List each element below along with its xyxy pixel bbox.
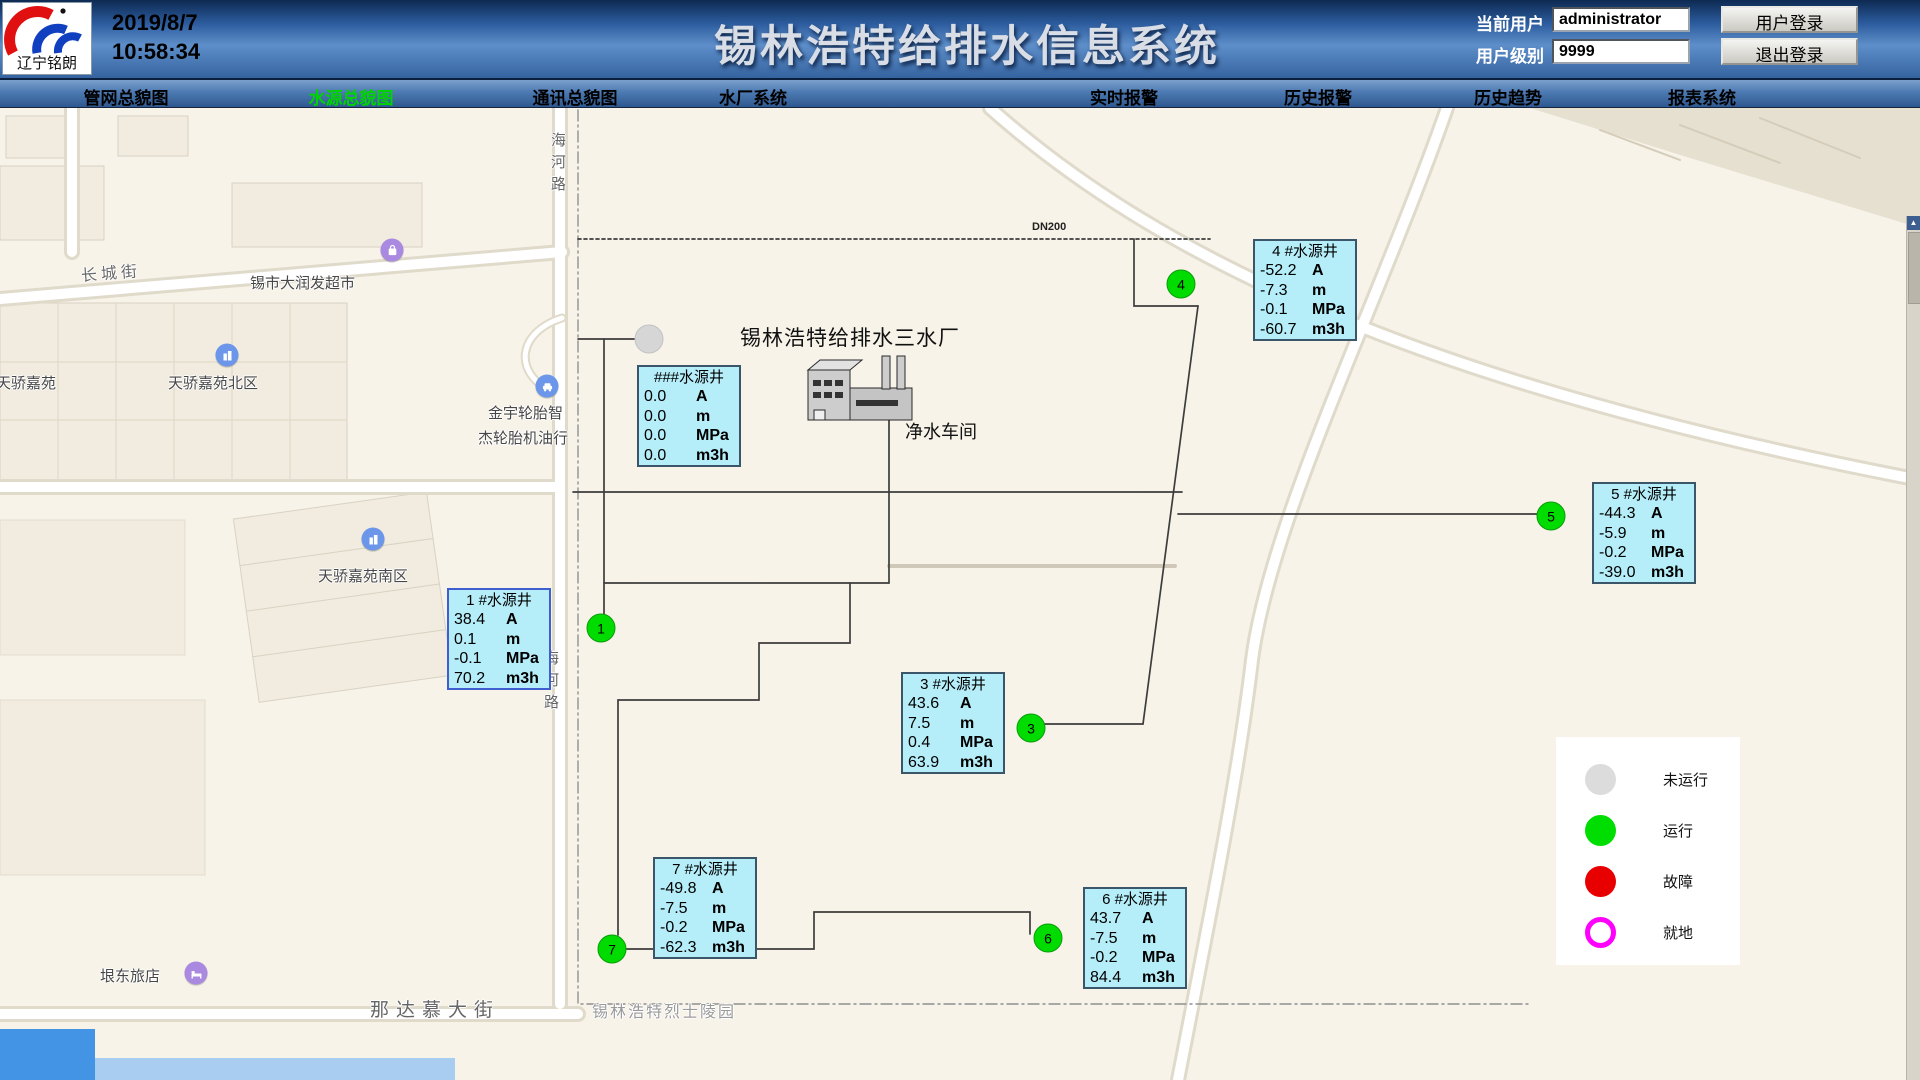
current-user-field[interactable] [1552,7,1690,32]
login-button[interactable]: 用户登录 [1721,6,1858,33]
well-title: 3 #水源井 [903,674,1003,694]
company-logo: 辽宁铭朗 [2,2,92,75]
well-box-5[interactable]: 5 #水源井-44.3A-5.9m-0.2MPa-39.0m3h [1592,482,1696,584]
map-label: 杰轮胎机油行 [478,427,568,448]
datetime-display: 2019/8/710:58:34 [112,8,200,66]
well-measurement-row: -0.1MPa [449,649,549,669]
scrollbar-thumb[interactable] [1908,232,1920,304]
legend-status-icon [1585,866,1616,897]
water-plant-building-icon [808,356,912,420]
map-label: 海河路 [547,132,568,198]
well-measurement-row: 0.0m [639,407,739,427]
map-label: 金宇轮胎智 [488,402,563,423]
legend-status-icon [1585,917,1616,948]
supermarket-icon [381,239,404,262]
legend-label: 运行 [1663,820,1693,841]
well-measurement-row: -52.2A [1255,261,1355,281]
well-title: ###水源井 [639,367,739,387]
user-level-label: 用户级别 [1476,42,1544,67]
well-box-4[interactable]: 4 #水源井-52.2A-7.3m-0.1MPa-60.7m3h [1253,239,1357,341]
map-label: 天骄嘉苑 [0,372,56,393]
user-level-field[interactable] [1552,39,1690,64]
logout-button[interactable]: 退出登录 [1721,38,1858,65]
well-measurement-row: 84.4m3h [1085,968,1185,988]
well-marker-6[interactable]: 6 [1034,924,1063,953]
well-measurement-row: 0.4MPa [903,733,1003,753]
plant-title: 锡林浩特给排水三水厂 [740,322,960,352]
title-bar: 辽宁铭朗 2019/8/710:58:34 锡林浩特给排水信息系统 当前用户 用… [0,0,1920,79]
well-measurement-row: -7.3m [1255,281,1355,301]
map-label: 天骄嘉苑北区 [168,372,258,393]
auto-shop-icon [536,375,559,398]
well-title: 6 #水源井 [1085,889,1185,909]
legend-status-icon [1585,764,1616,795]
nav-comms-overview[interactable]: 通讯总貌图 [533,84,618,109]
map-canvas[interactable]: 锡林浩特给排水三水厂 净水车间 DN200 未运行运行故障就地 ▲ 海河路长城街… [0,108,1920,1080]
pipe-diameter-label: DN200 [1032,221,1066,233]
legend-item: 运行 [1556,814,1740,846]
well-marker-4[interactable]: 4 [1167,270,1196,299]
scroll-up-arrow-icon[interactable]: ▲ [1907,216,1920,230]
map-label: 锡市大润发超市 [250,272,355,293]
well-measurement-row: -0.2MPa [655,918,755,938]
main-nav-bar: 管网总貌图水源总貌图通讯总貌图水厂系统实时报警历史报警历史趋势报表系统 [0,78,1920,108]
well-measurement-row: -0.2MPa [1085,948,1185,968]
current-user-label: 当前用户 [1476,10,1544,35]
well-measurement-row: 0.0m3h [639,446,739,466]
legend-item: 故障 [1556,865,1740,897]
well-marker-unit[interactable] [635,325,664,354]
legend-label: 就地 [1663,922,1693,943]
map-label: 锡林浩特烈士陵园 [592,998,736,1022]
legend-label: 故障 [1663,871,1693,892]
well-measurement-row: -7.5m [655,899,755,919]
nav-history-alarm[interactable]: 历史报警 [1284,84,1352,109]
well-measurement-row: 70.2m3h [449,669,549,689]
logo-text: 辽宁铭朗 [3,52,91,73]
well-marker-1[interactable]: 1 [587,614,616,643]
well-measurement-row: 63.9m3h [903,753,1003,773]
well-box-6[interactable]: 6 #水源井43.7A-7.5m-0.2MPa84.4m3h [1083,887,1187,989]
well-measurement-row: -39.0m3h [1594,563,1694,583]
well-measurement-row: -60.7m3h [1255,320,1355,340]
well-title: 4 #水源井 [1255,241,1355,261]
well-measurement-row: -5.9m [1594,524,1694,544]
well-measurement-row: 43.6A [903,694,1003,714]
well-marker-3[interactable]: 3 [1017,714,1046,743]
well-measurement-row: -0.2MPa [1594,543,1694,563]
well-measurement-row: -7.5m [1085,929,1185,949]
legend-status-icon [1585,815,1616,846]
community-north-icon [216,344,239,367]
legend-item: 未运行 [1556,763,1740,795]
well-marker-5[interactable]: 5 [1537,502,1566,531]
well-measurement-row: -0.1MPa [1255,300,1355,320]
nav-watersource-overview[interactable]: 水源总貌图 [309,84,394,109]
legend-item: 就地 [1556,916,1740,948]
well-title: 5 #水源井 [1594,484,1694,504]
well-measurement-row: -49.8A [655,879,755,899]
well-measurement-row: 0.0A [639,387,739,407]
nav-waterplant-system[interactable]: 水厂系统 [719,84,787,109]
nav-report-system[interactable]: 报表系统 [1668,84,1736,109]
well-measurement-row: 0.0MPa [639,426,739,446]
well-title: 7 #水源井 [655,859,755,879]
time-text: 10:58:34 [112,39,200,64]
nav-pipeline-overview[interactable]: 管网总貌图 [84,84,169,109]
vertical-scrollbar[interactable]: ▲ [1906,216,1920,1080]
logo-arcs-icon [3,3,91,59]
well-box-3[interactable]: 3 #水源井43.6A7.5m0.4MPa63.9m3h [901,672,1005,774]
nav-realtime-alarm[interactable]: 实时报警 [1090,84,1158,109]
map-label: 那达慕大街 [370,995,500,1022]
well-measurement-row: -62.3m3h [655,938,755,958]
date-text: 2019/8/7 [112,10,198,35]
page-title: 锡林浩特给排水信息系统 [714,12,1220,74]
legend-label: 未运行 [1663,769,1708,790]
well-box-1[interactable]: 1 #水源井38.4A0.1m-0.1MPa70.2m3h [447,588,551,690]
well-measurement-row: 38.4A [449,610,549,630]
well-measurement-row: 7.5m [903,714,1003,734]
well-measurement-row: -44.3A [1594,504,1694,524]
well-box-unit[interactable]: ###水源井0.0A0.0m0.0MPa0.0m3h [637,365,741,467]
map-label: 长城街 [80,257,142,286]
well-measurement-row: 43.7A [1085,909,1185,929]
map-label: 天骄嘉苑南区 [318,565,408,586]
status-legend: 未运行运行故障就地 [1556,737,1740,965]
community-south-icon [362,528,385,551]
hotel-icon [185,962,208,985]
map-label: 垠东旅店 [100,965,160,986]
well-title: 1 #水源井 [449,590,549,610]
well-marker-7[interactable]: 7 [598,935,627,964]
nav-history-trend[interactable]: 历史趋势 [1474,84,1542,109]
workshop-label: 净水车间 [905,418,977,444]
well-measurement-row: 0.1m [449,630,549,650]
well-box-7[interactable]: 7 #水源井-49.8A-7.5m-0.2MPa-62.3m3h [653,857,757,959]
